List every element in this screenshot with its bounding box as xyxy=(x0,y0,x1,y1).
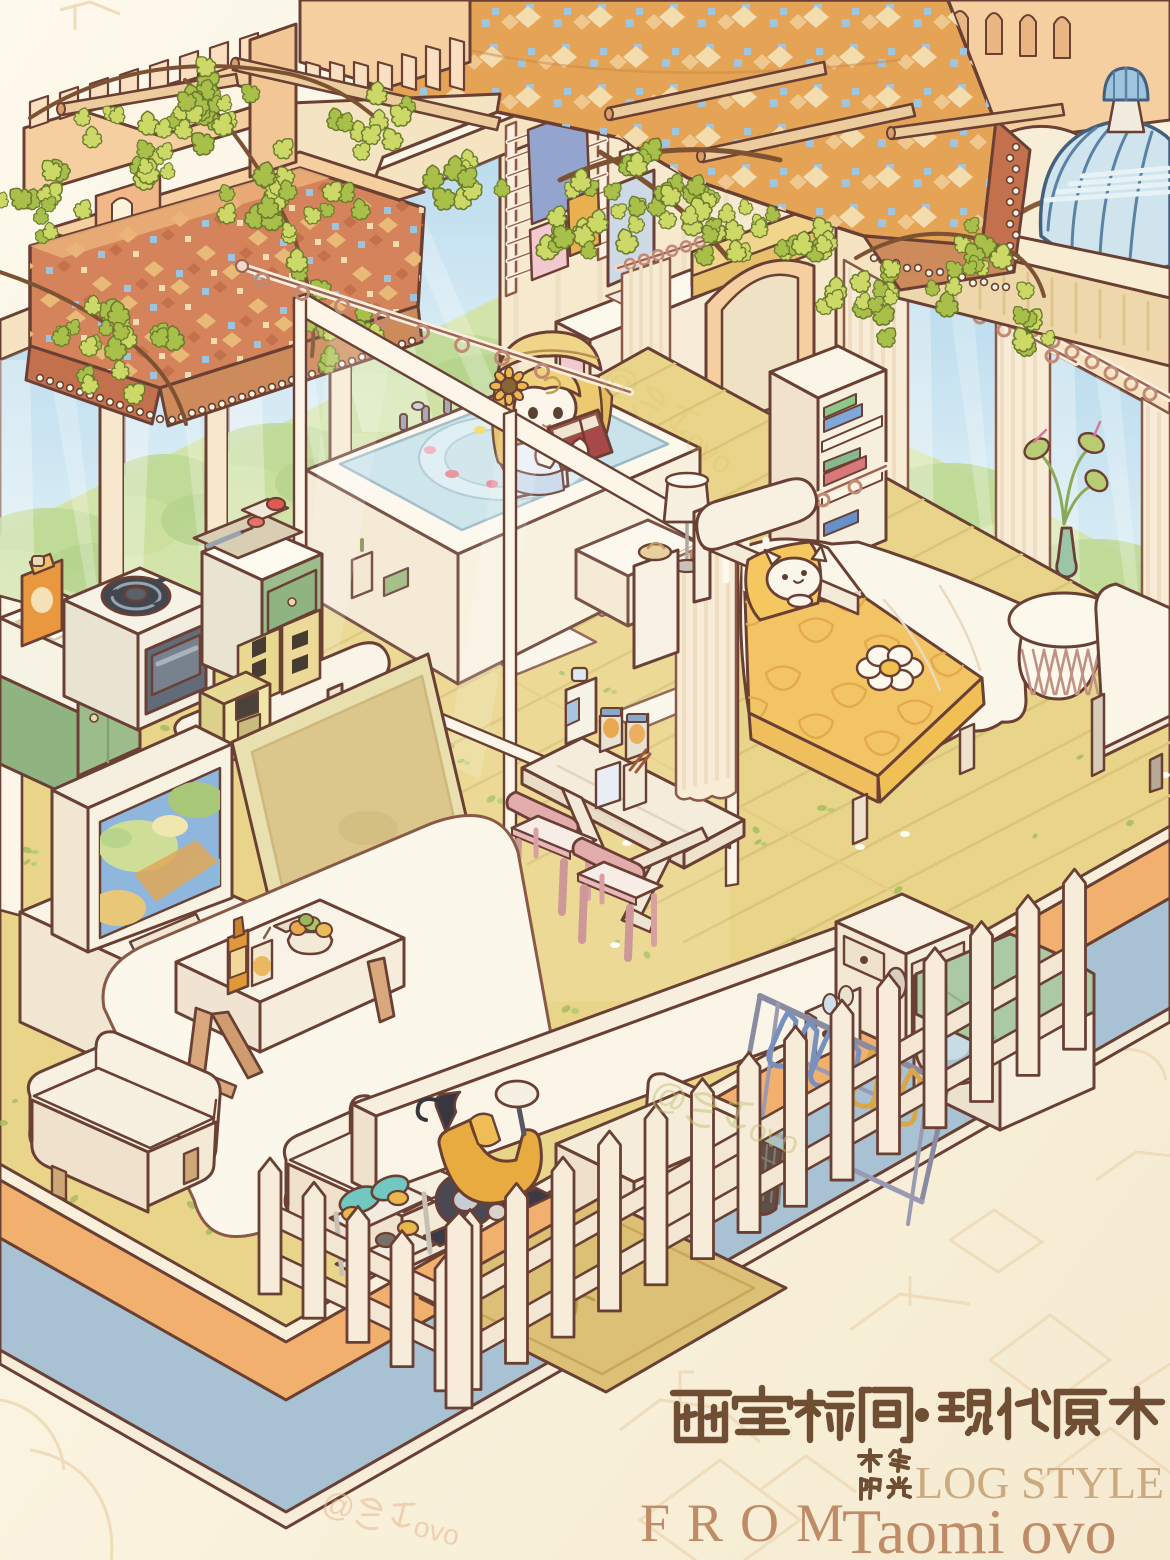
svg-text:Taomi ovo: Taomi ovo xyxy=(842,1496,1117,1560)
svg-text:FROM: FROM xyxy=(640,1493,861,1553)
